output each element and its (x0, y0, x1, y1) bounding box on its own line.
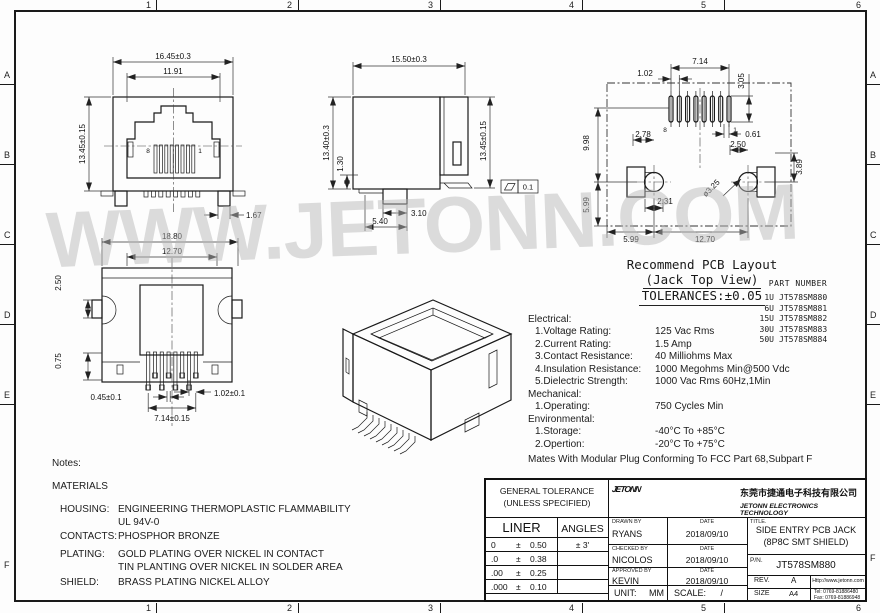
zone-tick (724, 603, 725, 613)
dim-label: 5.99 (582, 197, 591, 213)
zone-col-label: 6 (856, 603, 861, 613)
grid-line (557, 517, 558, 593)
drawing-sheet: 1 2 3 4 5 6 1 2 3 4 5 6 A B C D E F A B … (0, 0, 880, 613)
front-view: 16.45±0.3 11.91 13.45±0.15 1.67 8 1 (40, 42, 290, 247)
dim-label: 2.50 (54, 275, 63, 291)
isometric-view (315, 272, 535, 477)
zone-row-label: F (4, 560, 10, 570)
pcb-caption-line1: Recommend PCB Layout (588, 258, 816, 273)
tolerance-col-angles: ANGLES (557, 523, 608, 535)
side-view-dimensions: 15.50±0.3 13.40±0.3 1.30 13.45±0.15 3.10… (322, 55, 495, 231)
spec-row: 5.Dielectric Strength:1000 Vac Rms 60Hz,… (528, 376, 878, 388)
dim-label: 3.89 (795, 159, 804, 175)
zone-tick (156, 0, 157, 10)
top-view-dimensions: 18.80 12.70 2.50 0.75 0.45±0.1 7.14±0.15… (54, 232, 246, 423)
grid-line (747, 554, 865, 555)
website: Http://www.jetonn.com (811, 578, 865, 584)
rev-caption: REV. (754, 577, 770, 584)
scale-field: SCALE: / (674, 588, 723, 598)
drawn-by-caption: DRAWN BY (612, 519, 641, 525)
company-name-en: JETONN ELECTRONICS TECHNOLOGY (740, 503, 863, 517)
dim-label: 3.05 (737, 73, 746, 89)
material-value: GOLD PLATING OVER NICKEL IN CONTACT (118, 549, 324, 560)
zone-tick (298, 0, 299, 10)
tolerance-col-liner: LINER (486, 520, 557, 535)
pin-number-8: 8 (663, 127, 667, 134)
dim-label: 11.91 (163, 67, 183, 76)
top-view: 18.80 12.70 2.50 0.75 0.45±0.1 7.14±0.15… (40, 230, 305, 475)
zone-col-label: 5 (701, 0, 706, 10)
spec-row: 2.Current Rating:1.5 Amp (528, 339, 878, 351)
zone-row-label: F (870, 553, 876, 563)
pcb-holes (627, 165, 775, 199)
tolerance-header: GENERAL TOLERANCE (UNLESS SPECIFIED) (486, 485, 608, 509)
pin-number-1: 1 (198, 148, 202, 155)
pn-value: JT578SM880 (747, 560, 865, 571)
spec-section: Mechanical: (528, 389, 878, 401)
size-caption: SIZE (754, 590, 770, 597)
pcb-pads (669, 88, 731, 170)
zone-tick (440, 0, 441, 10)
notes-title: Notes: (52, 458, 81, 469)
fax: Fax: 0769-81886948 (814, 595, 860, 601)
dim-label: ø3.25 (701, 177, 722, 198)
pcb-layout-view: 7.14 1.02 3.05 0.61 9.98 5.99 2.78 2.50 (565, 48, 865, 288)
dim-label: 15.50±0.3 (391, 55, 427, 64)
grid-line (486, 565, 608, 566)
zone-row-label: B (870, 150, 876, 160)
zone-col-label: 3 (428, 0, 433, 10)
material-value: PHOSPHOR BRONZE (118, 531, 220, 542)
title-block: GENERAL TOLERANCE (UNLESS SPECIFIED) LIN… (484, 478, 867, 602)
part-number-header: PART NUMBER (748, 279, 848, 288)
zone-row-label: C (4, 230, 11, 240)
flatness-value: 0.1 (523, 183, 533, 192)
dim-label: 7.14 (692, 57, 708, 66)
part-number-row: 6UJT578SM881 (748, 304, 848, 315)
fcc-note: Mates With Modular Plug Conforming To FC… (528, 454, 878, 466)
dim-label: 0.61 (745, 130, 761, 139)
material-label: HOUSING: (60, 504, 109, 515)
zone-tick (0, 404, 14, 405)
dim-label: 1.02 (637, 69, 653, 78)
drawn-by-name: RYANS (612, 529, 642, 539)
drawing-title-line2: (8P8C SMT SHIELD) (747, 537, 865, 547)
zone-tick (724, 0, 725, 10)
date-caption: DATE (667, 568, 747, 574)
grid-line (747, 575, 865, 576)
material-label: CONTACTS: (60, 531, 117, 542)
company-name-cn: 东莞市捷通电子科技有限公司 (740, 486, 863, 499)
date-caption: DATE (667, 519, 747, 525)
zone-row-label: E (4, 390, 10, 400)
dim-label: 1.30 (336, 156, 345, 172)
notes-block: Notes: MATERIALS HOUSING: ENGINEERING TH… (50, 458, 480, 608)
zone-col-label: 4 (569, 603, 574, 613)
zone-tick (0, 164, 14, 165)
drawing-title-line1: SIDE ENTRY PCB JACK (747, 525, 865, 535)
zone-col-label: 2 (287, 0, 292, 10)
zone-tick (0, 84, 14, 85)
dim-label: 12.70 (162, 247, 183, 256)
date-caption: DATE (667, 546, 747, 552)
grid-line (608, 585, 747, 586)
zone-row-label: B (4, 150, 10, 160)
zone-row-label: C (870, 230, 877, 240)
dim-label: 2.50 (730, 140, 746, 149)
approved-by-caption: APPROVED BY (612, 568, 651, 574)
pcb-outline (607, 83, 791, 226)
spec-row: 2.Opertion:-20°C To +75°C (528, 439, 878, 451)
dim-label: 9.98 (582, 135, 591, 151)
spec-row: 1.Voltage Rating:125 Vac Rms (528, 326, 878, 338)
grid-line (486, 537, 608, 538)
dim-label: 13.45±0.15 (78, 123, 87, 164)
pin-number-8: 8 (146, 148, 150, 155)
jetonn-logo: JETONN (611, 484, 641, 494)
dim-label: 18.80 (162, 232, 183, 241)
rev-value: A (791, 576, 796, 585)
part-number-row: 1UJT578SM880 (748, 293, 848, 304)
pin-number-1: 1 (733, 127, 737, 134)
grid-line (486, 593, 608, 594)
grid-line (486, 517, 865, 518)
top-view-geometry (92, 268, 242, 390)
pcb-caption-line2: (Jack Top View) (643, 273, 762, 290)
unit-field: UNIT: MM (614, 588, 664, 598)
zone-tick (0, 244, 14, 245)
checked-by-name: NICOLOS (612, 555, 653, 565)
dim-label: 1.67 (246, 211, 262, 220)
zone-row-label: A (870, 70, 876, 80)
grid-line (810, 575, 811, 600)
zone-row-label: A (4, 70, 10, 80)
front-view-geometry (101, 97, 245, 206)
materials-title: MATERIALS (52, 481, 108, 492)
grid-line (608, 567, 747, 568)
spec-row: 1.Operating:750 Cycles Min (528, 401, 878, 413)
pcb-dimensions: 7.14 1.02 3.05 0.61 9.98 5.99 2.78 2.50 (582, 57, 804, 244)
zone-tick (0, 324, 14, 325)
zone-col-label: 1 (146, 0, 151, 10)
dim-label: 5.99 (623, 235, 639, 244)
flatness-symbol: 0.1 (501, 180, 538, 193)
zone-col-label: 4 (569, 0, 574, 10)
zone-tick (867, 84, 880, 85)
grid-line (608, 544, 747, 545)
spec-row: 1.Storage:-40°C To +85°C (528, 426, 878, 438)
dim-label: 2.78 (635, 130, 651, 139)
pcb-caption-line3: TOLERANCES:±0.05 (639, 289, 765, 306)
grid-line (486, 551, 608, 552)
dim-label: 7.14±0.15 (154, 414, 190, 423)
material-value: UL 94V-0 (118, 517, 159, 528)
material-value: ENGINEERING THERMOPLASTIC FLAMMABILITY (118, 504, 351, 515)
specifications-block: Electrical: 1.Voltage Rating:125 Vac Rms… (528, 314, 878, 466)
zone-tick (867, 164, 880, 165)
spec-section: Environmental: (528, 414, 878, 426)
dim-label: 3.10 (411, 209, 427, 218)
zone-tick (867, 244, 880, 245)
material-value: BRASS PLATING NICKEL ALLOY (118, 577, 270, 588)
dim-label: 1.02±0.1 (214, 389, 246, 398)
drawn-date: 2018/09/10 (667, 529, 747, 539)
grid-line (747, 588, 865, 589)
zone-col-label: 5 (701, 603, 706, 613)
checked-by-caption: CHECKED BY (612, 546, 648, 552)
grid-line (486, 579, 608, 580)
grid-line (608, 480, 609, 600)
spec-row: 3.Contact Resistance:40 Milliohms Max (528, 351, 878, 363)
dim-label: 2.31 (657, 197, 673, 206)
side-view-geometry (353, 97, 472, 204)
dim-label: 5.40 (372, 217, 388, 226)
zone-col-label: 6 (856, 0, 861, 10)
checked-date: 2018/09/10 (667, 555, 747, 565)
isometric-geometry (343, 300, 511, 454)
dim-label: 16.45±0.3 (155, 52, 191, 61)
zone-tick (582, 603, 583, 613)
material-label: PLATING: (60, 549, 105, 560)
grid-line (667, 517, 668, 600)
dim-label: 13.40±0.3 (322, 125, 331, 161)
zone-row-label: D (4, 310, 11, 320)
dim-label: 0.45±0.1 (90, 393, 122, 402)
size-value: A4 (789, 589, 798, 598)
dim-label: 13.45±0.15 (479, 120, 488, 161)
spec-row: 4.Insulation Resistance:1000 Megohms Min… (528, 364, 878, 376)
material-value: TIN PLANTING OVER NICKEL IN SOLDER AREA (118, 562, 343, 573)
zone-tick (582, 0, 583, 10)
side-view: 15.50±0.3 13.40±0.3 1.30 13.45±0.15 3.10… (318, 42, 550, 247)
material-label: SHIELD: (60, 577, 99, 588)
dim-label: 0.75 (54, 353, 63, 369)
spec-section: Electrical: (528, 314, 878, 326)
dim-label: 12.70 (695, 235, 716, 244)
